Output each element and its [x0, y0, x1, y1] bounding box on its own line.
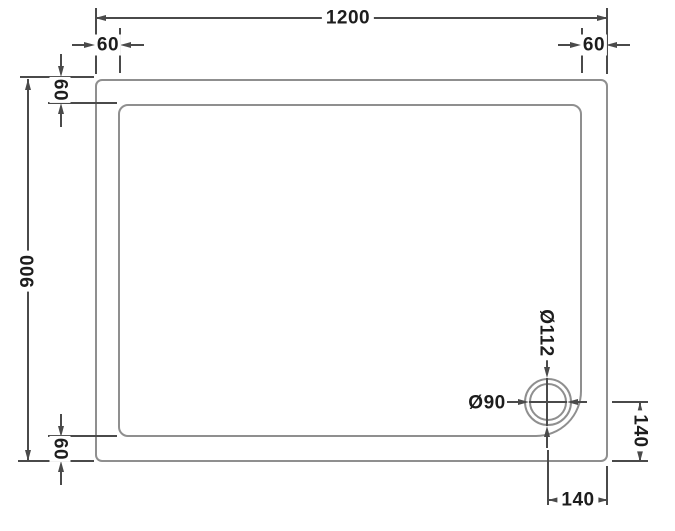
dim-label-overall-depth: 900	[18, 250, 39, 291]
dimension-line	[60, 472, 62, 485]
dim-label-rim-top: 60	[50, 77, 71, 103]
dimension-line	[529, 401, 567, 403]
arrowhead-down	[58, 66, 64, 77]
arrowhead-right	[518, 399, 529, 405]
arrowhead-down	[25, 450, 31, 461]
dim-label-overall-width: 1200	[322, 8, 374, 29]
tray-inner-edge	[118, 104, 582, 437]
arrowhead-right	[84, 42, 95, 48]
dimension-line	[546, 437, 548, 448]
arrowhead-left	[567, 399, 578, 405]
arrowhead-left	[606, 42, 617, 48]
technical-drawing-canvas: 1200 60 60 900 60 60	[0, 0, 675, 531]
dim-label-offset-top-right: 60	[581, 35, 607, 56]
arrowhead-down	[637, 451, 643, 462]
dim-label-waste-offset-right: 140	[630, 410, 651, 451]
arrowhead-down	[544, 367, 550, 378]
dimension-line	[60, 414, 62, 426]
arrowhead-left	[95, 15, 106, 21]
dimension-line	[617, 44, 630, 46]
arrowhead-right	[597, 15, 608, 21]
dimension-line	[131, 44, 144, 46]
dimension-line	[578, 401, 587, 403]
dim-label-rim-bottom: 60	[50, 436, 71, 462]
arrowhead-up	[544, 426, 550, 437]
dim-label-waste-outer-diameter: Ø112	[536, 305, 557, 360]
dim-label-waste-inner-diameter: Ø90	[464, 393, 509, 414]
arrowhead-left	[120, 42, 131, 48]
arrowhead-right	[597, 497, 608, 503]
arrowhead-up	[58, 103, 64, 114]
arrowhead-up	[25, 79, 31, 90]
dim-label-offset-top-left: 60	[95, 35, 121, 56]
arrowhead-up	[58, 461, 64, 472]
arrowhead-right	[570, 42, 581, 48]
dim-label-waste-offset-bottom: 140	[557, 490, 598, 511]
dimension-line	[60, 114, 62, 127]
